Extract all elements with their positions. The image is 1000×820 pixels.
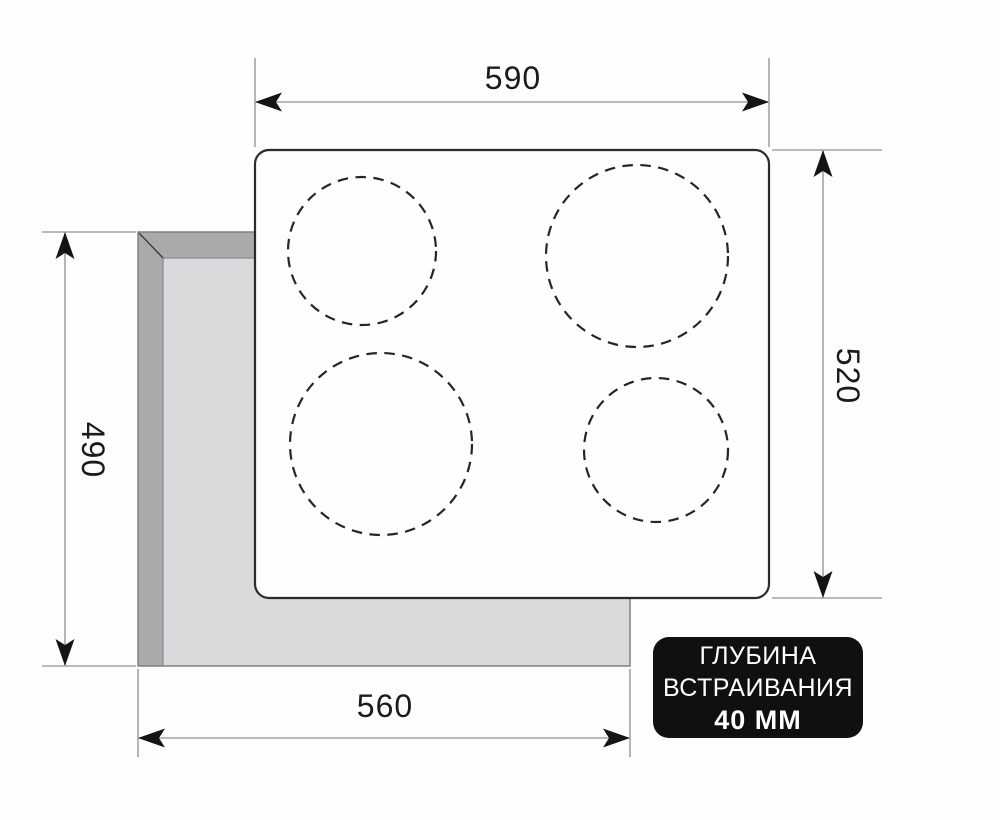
badge-line-2: ВСТРАИВАНИЯ (663, 672, 853, 704)
cooktop-outline (255, 150, 769, 598)
cooktop-top-view (255, 150, 769, 598)
cutout-bevel-left (138, 232, 163, 666)
dimension-label-top-width: 590 (463, 60, 563, 96)
badge-line-1: ГЛУБИНА (699, 640, 816, 672)
dimension-label-bottom-width: 560 (335, 688, 435, 724)
cooktop-installation-diagram: 590 520 490 560 ГЛУБИНА ВСТРАИВАНИЯ 40 М… (0, 0, 1000, 820)
dimension-label-left-height: 490 (75, 400, 111, 500)
installation-depth-badge: ГЛУБИНА ВСТРАИВАНИЯ 40 ММ (653, 637, 863, 738)
badge-depth-value: 40 ММ (714, 704, 802, 736)
dimension-label-right-height: 520 (830, 326, 866, 426)
